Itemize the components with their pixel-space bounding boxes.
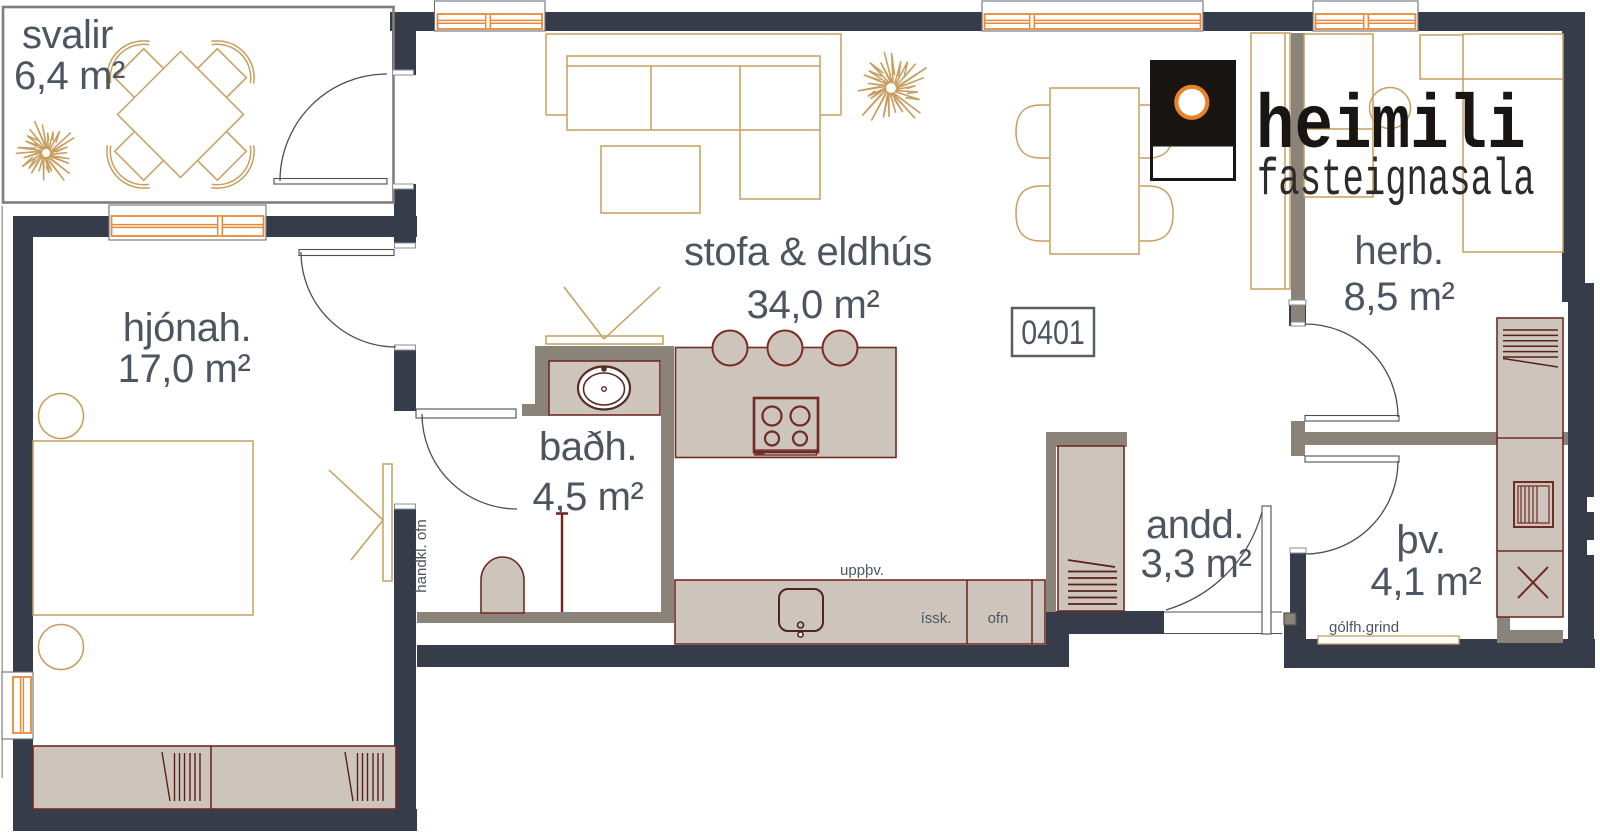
svg-text:ofn: ofn xyxy=(988,610,1009,627)
svg-text:4,5 m²: 4,5 m² xyxy=(533,475,644,519)
svg-text:fasteignasala: fasteignasala xyxy=(1257,152,1535,210)
svg-text:8,5 m²: 8,5 m² xyxy=(1344,275,1455,319)
svg-text:uppþv.: uppþv. xyxy=(840,562,884,579)
svg-text:stofa & eldhús: stofa & eldhús xyxy=(684,230,932,274)
svg-text:hjónah.: hjónah. xyxy=(123,306,251,350)
svg-text:6,4 m²: 6,4 m² xyxy=(14,54,125,98)
svg-text:andd.: andd. xyxy=(1146,503,1244,547)
svg-text:3,3 m²: 3,3 m² xyxy=(1141,542,1252,586)
svg-text:handkl. ofn: handkl. ofn xyxy=(413,519,430,592)
svg-text:herb.: herb. xyxy=(1354,229,1443,273)
svg-text:íssk.: íssk. xyxy=(921,610,952,627)
svg-text:gólfh.grind: gólfh.grind xyxy=(1329,619,1399,636)
svg-text:baðh.: baðh. xyxy=(539,425,637,469)
svg-text:þv.: þv. xyxy=(1396,518,1445,562)
svg-text:4,1 m²: 4,1 m² xyxy=(1371,560,1482,604)
svg-text:svalir: svalir xyxy=(22,13,113,57)
svg-text:34,0 m²: 34,0 m² xyxy=(747,283,880,327)
svg-text:0401: 0401 xyxy=(1021,314,1085,352)
svg-text:17,0 m²: 17,0 m² xyxy=(118,347,251,391)
